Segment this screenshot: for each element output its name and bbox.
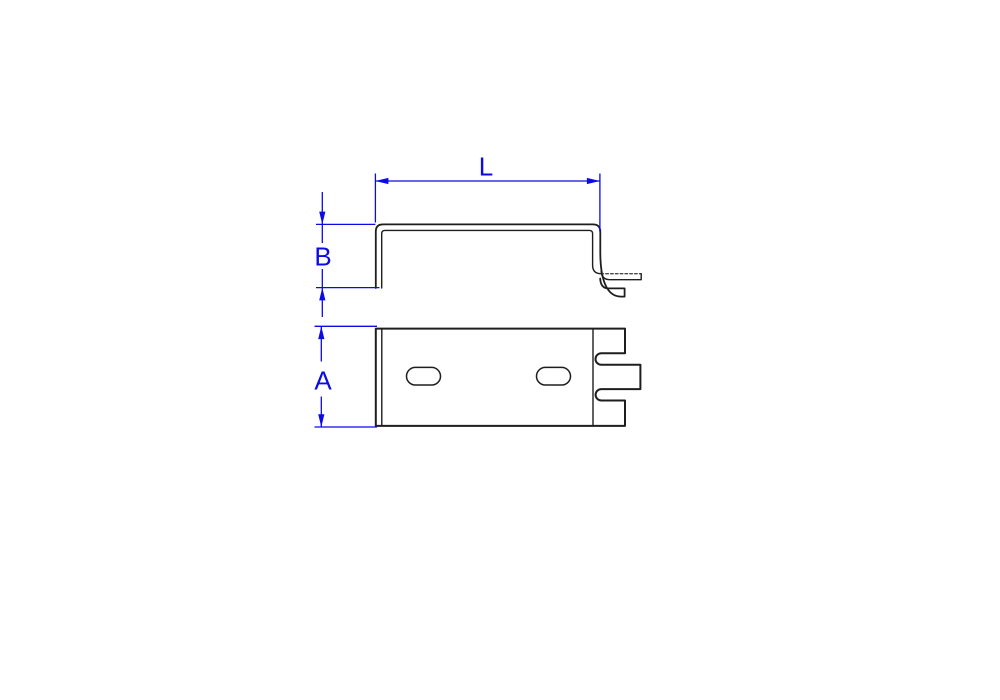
dim-B-arrow-up <box>319 288 325 301</box>
dim-B-label: B <box>314 242 331 272</box>
dim-L-label: L <box>479 152 493 182</box>
dim-A-arrow-down <box>318 414 324 427</box>
front-view-outline <box>376 329 641 426</box>
side-view-inner-contour <box>382 230 601 288</box>
front-view-slot-right <box>537 367 571 385</box>
dim-B-arrow-down <box>319 212 325 225</box>
side-view-outer-contour <box>376 224 625 296</box>
dim-A-label: A <box>314 366 332 396</box>
dim-L-arrow-right <box>587 178 600 184</box>
technical-drawing: L B A <box>0 0 1000 700</box>
side-view-upper-lip-bottom-edge <box>601 271 641 280</box>
side-profile-view <box>376 224 641 296</box>
front-view <box>376 329 641 426</box>
dim-L-arrow-left <box>375 178 388 184</box>
dimension-lines <box>315 174 600 428</box>
front-view-slot-left <box>407 367 441 385</box>
cad-drawing-canvas: L B A <box>0 0 1000 700</box>
dimension-labels: L B A <box>314 152 493 396</box>
dim-A-arrow-up <box>318 326 324 339</box>
